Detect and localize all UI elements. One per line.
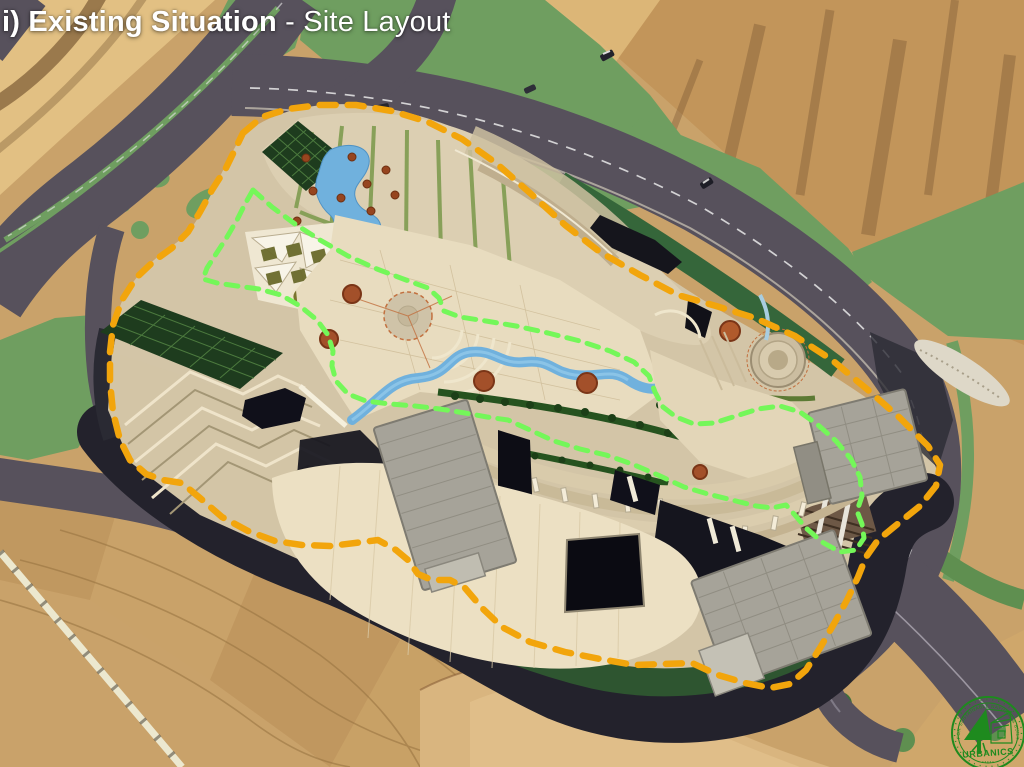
site-render: FOR SUSTAINABLE NATURAL & BUILT URBANICS… (0, 0, 1024, 767)
title-bold: i) Existing Situation (2, 6, 277, 38)
plaza-stage-void (565, 534, 644, 612)
page-title: i) Existing Situation - Site Layout (2, 6, 451, 39)
title-regular: - Site Layout (277, 6, 451, 38)
logo-cjk-marks: ▪ ▪ ▪ ▪ ▪ (982, 759, 994, 764)
slide: FOR SUSTAINABLE NATURAL & BUILT URBANICS… (0, 0, 1024, 767)
